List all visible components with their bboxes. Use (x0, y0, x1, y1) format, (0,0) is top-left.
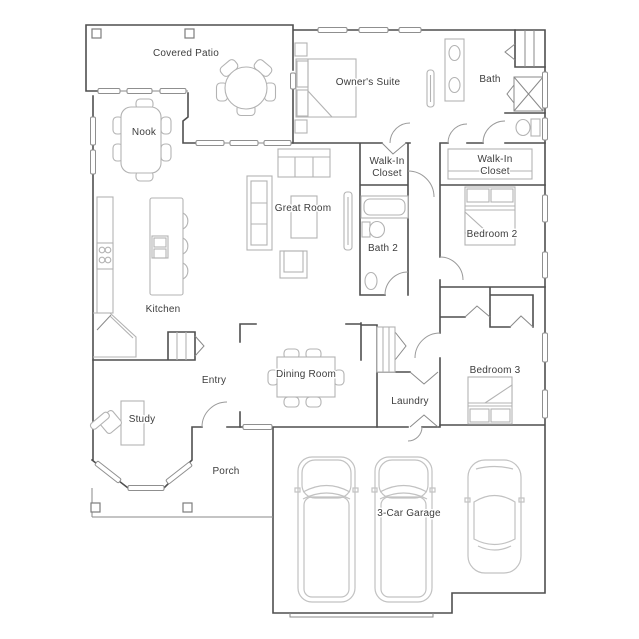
room-label-covered-patio: Covered Patio (153, 48, 219, 59)
door-arcs (202, 121, 505, 441)
porch-posts (91, 503, 192, 512)
great-room-barn-door-icon (344, 192, 352, 250)
room-label-bedroom-2: Bedroom 2 (467, 229, 518, 240)
bath-toilet-icon (516, 119, 540, 136)
truck-icon (372, 457, 435, 602)
room-label-entry: Entry (202, 375, 226, 386)
kitchen-counter-icon (93, 197, 136, 357)
room-label-walk-in-closet-owner-line2: Closet (372, 168, 402, 179)
room-label-garage: 3-Car Garage (377, 508, 441, 519)
car-icon (465, 460, 524, 573)
room-label-nook: Nook (132, 127, 157, 138)
patio-table-icon (217, 58, 276, 115)
room-label-bedroom-3: Bedroom 3 (470, 365, 521, 376)
room-label-kitchen: Kitchen (146, 304, 181, 315)
refrigerator-icon (177, 332, 186, 360)
laundry-washer-dryer-icon (377, 327, 395, 372)
room-label-walk-in-closet-owner-line1: Walk-In (370, 156, 405, 167)
floor-plan-drawing: Covered Patio Owner's Suite Bath Nook Wa… (0, 0, 639, 639)
great-room-sofa-icon (278, 149, 330, 177)
room-label-walk-in-closet-2-line2: Closet (480, 166, 510, 177)
floor-plan-page: Covered Patio Owner's Suite Bath Nook Wa… (0, 0, 639, 639)
great-room-armchair-icon (280, 251, 307, 278)
nook-table-icon (113, 99, 171, 181)
room-label-dining-room: Dining Room (276, 369, 336, 380)
bath-vanity-icon (445, 39, 464, 101)
bedroom-3-bed-icon (468, 377, 512, 424)
room-label-owners-suite: Owner's Suite (336, 77, 401, 88)
owners-barn-door-icon (427, 70, 434, 107)
room-label-great-room: Great Room (275, 203, 331, 214)
room-label-study: Study (129, 414, 156, 425)
patio-posts (92, 29, 194, 38)
room-label-bath-2: Bath 2 (368, 243, 398, 254)
truck-icon (295, 457, 358, 602)
room-labels: Covered Patio Owner's Suite Bath Nook Wa… (129, 48, 521, 519)
owners-suite-bed-icon (295, 43, 356, 133)
room-label-laundry: Laundry (391, 396, 429, 407)
room-label-walk-in-closet-2-line1: Walk-In (478, 154, 513, 165)
great-room-media-unit-icon (247, 176, 272, 250)
room-label-porch: Porch (212, 466, 239, 477)
room-label-bath: Bath (479, 74, 500, 85)
kitchen-island-icon (150, 198, 188, 295)
